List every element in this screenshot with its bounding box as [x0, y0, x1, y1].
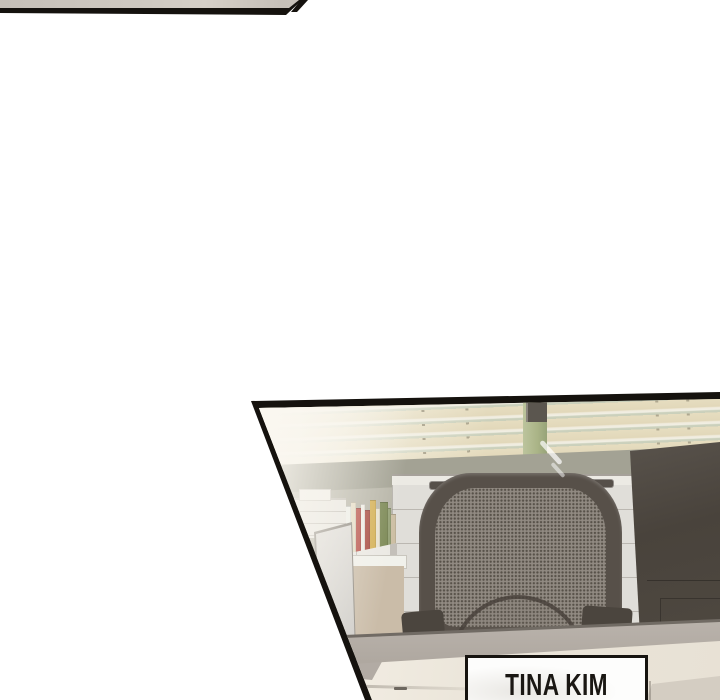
- monitor-seam-line: [647, 580, 720, 581]
- name-plate: TINA KIM: [465, 655, 648, 700]
- desk-corner-seam: [649, 681, 651, 700]
- comic-page: TINA KIM: [0, 0, 720, 700]
- blind-cord: [465, 394, 470, 464]
- top-panel-fragment: [0, 0, 330, 18]
- main-panel: TINA KIM: [0, 0, 720, 700]
- monitor-back: [627, 440, 720, 636]
- name-plate-text: TINA KIM: [492, 667, 621, 700]
- desk-edge-mark: [394, 687, 407, 690]
